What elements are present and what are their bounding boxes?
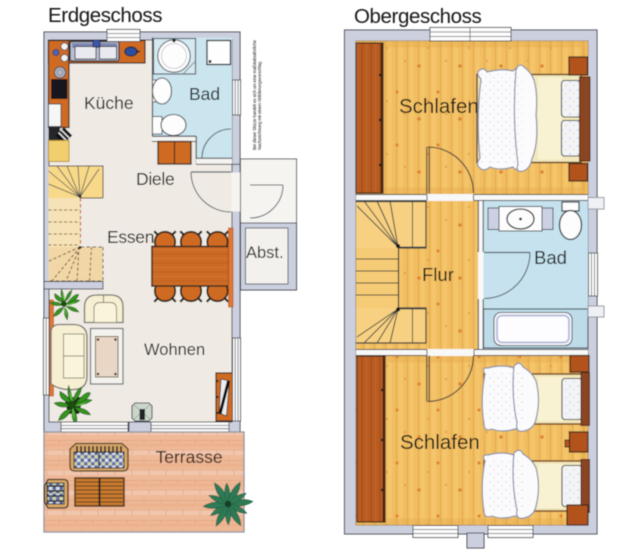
svg-text:Obergeschoss: Obergeschoss: [354, 5, 482, 28]
svg-text:Erdgeschoss: Erdgeschoss: [48, 4, 162, 27]
svg-text:Flur: Flur: [422, 264, 454, 285]
svg-text:Essen: Essen: [107, 227, 154, 247]
svg-text:Wohnen: Wohnen: [144, 341, 205, 359]
svg-text:Bad: Bad: [534, 247, 567, 268]
svg-text:Schlafen: Schlafen: [400, 431, 480, 454]
svg-text:Bad: Bad: [189, 84, 220, 104]
svg-text:Terrasse: Terrasse: [156, 447, 223, 467]
svg-text:Diele: Diele: [136, 169, 174, 189]
svg-text:Küche: Küche: [84, 93, 134, 113]
svg-text:Nachzeichnung mit einem Möblie: Nachzeichnung mit einem Möblierungsvorsc…: [257, 61, 262, 150]
svg-text:Abst.: Abst.: [246, 244, 284, 262]
svg-text:Schlafen: Schlafen: [399, 95, 479, 118]
